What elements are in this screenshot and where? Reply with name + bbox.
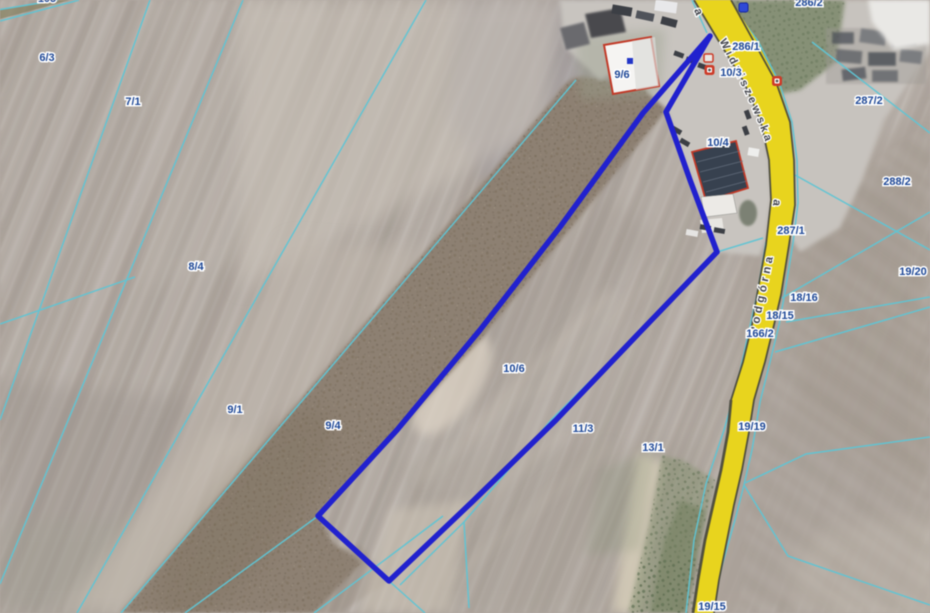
- svg-text:287/1: 287/1: [777, 225, 805, 237]
- svg-text:19/19: 19/19: [738, 421, 766, 433]
- svg-text:13/1: 13/1: [642, 442, 663, 454]
- svg-text:19/15: 19/15: [698, 601, 726, 613]
- svg-text:18/16: 18/16: [790, 292, 818, 304]
- svg-text:9/6: 9/6: [614, 69, 629, 81]
- svg-text:10/3: 10/3: [720, 67, 741, 79]
- svg-text:18/15: 18/15: [766, 310, 794, 322]
- svg-text:287/2: 287/2: [855, 95, 883, 107]
- svg-text:10/6: 10/6: [503, 363, 524, 375]
- svg-text:9/4: 9/4: [325, 420, 341, 432]
- svg-text:105: 105: [38, 0, 56, 5]
- svg-text:286/2: 286/2: [795, 0, 823, 9]
- svg-text:6/3: 6/3: [39, 52, 54, 64]
- svg-text:8/4: 8/4: [188, 261, 204, 273]
- svg-text:7/1: 7/1: [125, 96, 140, 108]
- svg-text:286/1: 286/1: [732, 41, 760, 53]
- svg-text:9/1: 9/1: [227, 404, 242, 416]
- svg-text:10/4: 10/4: [707, 137, 729, 149]
- svg-text:166/2: 166/2: [746, 328, 774, 340]
- svg-text:19/20: 19/20: [899, 266, 927, 278]
- svg-text:288/2: 288/2: [883, 176, 911, 188]
- svg-text:11/3: 11/3: [573, 423, 594, 435]
